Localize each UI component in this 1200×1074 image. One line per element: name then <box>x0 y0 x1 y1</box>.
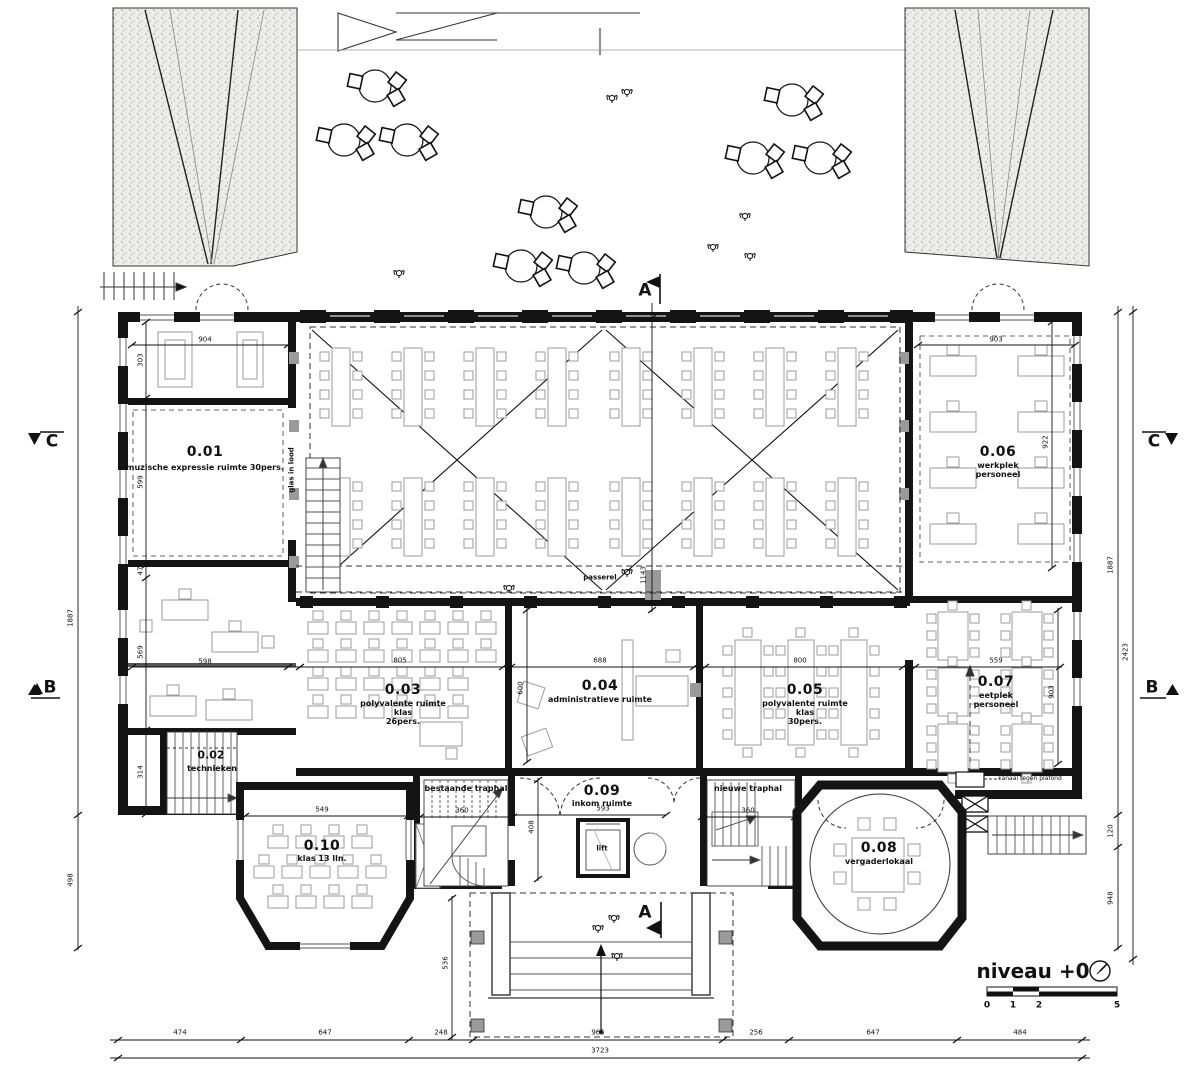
kanaal-label: kanaal tegen plafond <box>998 776 1062 782</box>
new-stair <box>707 780 795 886</box>
dim-bottom-6: 647 <box>866 1030 879 1037</box>
bestaande-traphal-label: bestaande traphal <box>425 785 508 793</box>
dim-bottom-4: 965 <box>591 1030 604 1037</box>
courtyard-birds <box>394 89 755 278</box>
section-c-left: C <box>46 434 58 451</box>
glas-in-lood-label: glas in lood <box>289 447 296 493</box>
dim-bottom-total: 3723 <box>591 1048 609 1055</box>
dim-47: 47 <box>138 567 145 576</box>
room-name-0-02: technieken <box>187 765 237 773</box>
room-number-0-09: 0.09 <box>584 784 621 798</box>
section-a-bottom: A <box>638 905 651 922</box>
dim-bottom-5: 256 <box>749 1030 762 1037</box>
section-b-right: B <box>1146 680 1159 697</box>
room-name-0-10: klas 13 lln. <box>297 855 346 863</box>
dim-598: 598 <box>198 659 211 666</box>
north-icon <box>1090 961 1110 981</box>
section-b-left: B <box>44 680 57 697</box>
dim-903-right: 903 <box>1049 685 1056 698</box>
dim-bottom-7: 484 <box>1013 1030 1026 1037</box>
room-number-0-02: 0.02 <box>197 750 224 761</box>
scale-5: 5 <box>1114 1002 1120 1011</box>
dim-903-top: 903 <box>989 337 1002 344</box>
dim-bottom-1: 474 <box>173 1030 186 1037</box>
dim-360-right: 360 <box>741 808 754 815</box>
courtyard-structures <box>297 13 905 55</box>
scale-0: 0 <box>984 1002 990 1011</box>
dim-904: 904 <box>198 337 211 344</box>
courtyard-round-tables <box>316 70 851 288</box>
room-number-0-06: 0.06 <box>980 445 1017 459</box>
dim-593: 593 <box>596 806 609 813</box>
room-name-0-06: werkplek <box>977 462 1018 470</box>
dim-805: 805 <box>393 658 406 665</box>
glass-piers <box>289 352 909 600</box>
dim-left-498: 498 <box>68 873 75 886</box>
room-name-0-06-l2: personeel <box>976 471 1021 479</box>
room-number-0-05: 0.05 <box>787 683 824 697</box>
hall-stair <box>306 458 340 592</box>
room-name-0-04: administratieve ruimte <box>548 696 652 704</box>
left-office-desks <box>140 589 274 720</box>
dim-right-120: 120 <box>1108 824 1115 837</box>
existing-stair <box>424 780 508 886</box>
dim-599: 599 <box>138 475 145 488</box>
room-name-0-07-l2: personeel <box>974 701 1019 709</box>
room-number-0-04: 0.04 <box>582 679 619 693</box>
section-c-right: C <box>1148 434 1160 451</box>
room-name-0-03-l2: klas <box>394 709 412 717</box>
central-hall <box>296 327 905 593</box>
passerel-label: passerel <box>583 575 616 582</box>
nieuwe-traphal-label: nieuwe traphal <box>714 785 782 793</box>
section-a-top: A <box>638 283 651 300</box>
courtyard-steps-left <box>100 272 186 300</box>
room-number-0-10: 0.10 <box>304 839 341 853</box>
courtyard-ground <box>113 8 1089 266</box>
dim-600: 600 <box>518 681 525 694</box>
dim-left-1887: 1887 <box>68 609 75 627</box>
room-number-0-07: 0.07 <box>978 675 1015 689</box>
dim-549: 549 <box>315 807 328 814</box>
lift-label: lift <box>596 846 607 853</box>
dim-bottom-3: 248 <box>434 1030 447 1037</box>
floor-plan: 0.01 muzische expressie ruimte 30pers. 0… <box>0 0 1200 1074</box>
dim-688: 688 <box>593 658 606 665</box>
drawing-title: niveau +0 <box>976 961 1089 981</box>
dim-314: 314 <box>138 765 145 778</box>
right-exterior-stair <box>988 816 1086 854</box>
room-number-0-03: 0.03 <box>385 683 422 697</box>
dim-922: 922 <box>1043 435 1050 448</box>
dim-569: 569 <box>138 645 145 658</box>
room-name-0-05-l3: 30pers. <box>788 718 822 726</box>
dim-408: 408 <box>529 820 536 833</box>
room-name-0-05: polyvalente ruimte <box>762 700 848 708</box>
dim-800: 800 <box>793 658 806 665</box>
room-name-0-03: polyvalente ruimte <box>360 700 446 708</box>
room-name-0-01: muzische expressie ruimte 30pers. <box>126 464 284 472</box>
dim-303: 303 <box>138 353 145 366</box>
dim-1143: 1143 <box>641 566 648 584</box>
dim-360-left: 360 <box>455 808 468 815</box>
dim-bottom-2: 647 <box>318 1030 331 1037</box>
room-name-0-07: eetplek <box>979 692 1013 700</box>
room-0-02-stair <box>167 732 237 814</box>
dim-right-948: 948 <box>1108 891 1115 904</box>
room-name-0-08: vergaderlokaal <box>845 858 913 866</box>
entrance-porch <box>470 893 733 1037</box>
room-name-0-03-l3: 26pers. <box>386 718 420 726</box>
dim-right-2423: 2423 <box>1123 643 1130 661</box>
dim-559: 559 <box>989 658 1002 665</box>
scale-2: 2 <box>1036 1002 1042 1011</box>
room-number-0-08: 0.08 <box>861 841 898 855</box>
dim-536: 536 <box>443 956 450 969</box>
room-number-0-01: 0.01 <box>187 445 224 459</box>
scale-bar <box>987 987 1117 996</box>
dim-right-1887: 1887 <box>1108 556 1115 574</box>
scale-1: 1 <box>1010 1002 1016 1011</box>
floor-plan-canvas <box>0 0 1200 1074</box>
courtyard-door-arcs <box>196 284 1024 310</box>
room-name-0-05-l2: klas <box>796 709 814 717</box>
hall-tables <box>320 348 868 556</box>
